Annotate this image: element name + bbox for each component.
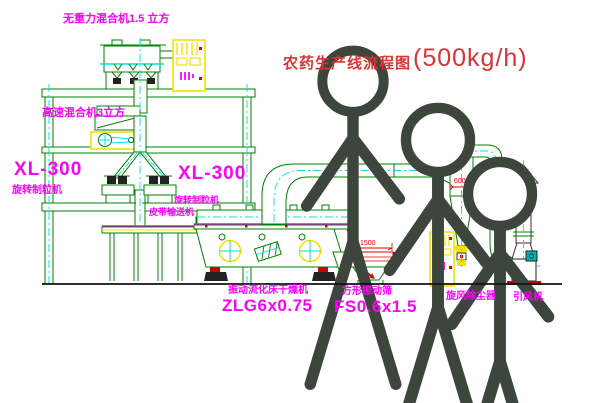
label-granulator-model-left: XL-300 bbox=[14, 160, 82, 179]
label-fluid-bed-dryer-model: ZLG6x0.75 bbox=[222, 297, 313, 314]
dimension-sieve-length: 1500 bbox=[360, 240, 376, 247]
label-fluid-bed-dryer: 振动流化床干燥机 bbox=[228, 286, 308, 296]
label-belt-conveyor: 皮带输送机 bbox=[149, 208, 194, 217]
label-induced-fan: 引风机 bbox=[513, 293, 543, 303]
label-square-sieve-model: FS0.6x1.5 bbox=[334, 298, 417, 315]
label-granulator-name-right: 旋转制粒机 bbox=[174, 196, 219, 205]
label-high-speed-mixer: 高速混合机3立方 bbox=[42, 108, 125, 119]
label-granulator-name-left: 旋转制粒机 bbox=[12, 186, 62, 196]
diagram-title: 农药生产线流程图 (500kg/h) bbox=[283, 44, 528, 73]
label-cyclone: 旋风除尘器 bbox=[446, 292, 496, 302]
zero-gravity-mixer-drawing bbox=[100, 40, 173, 113]
label-granulator-model-right: XL-300 bbox=[178, 164, 246, 183]
dimension-cyclone-width: 600 bbox=[454, 178, 466, 185]
label-square-sieve: 方形振动筛 bbox=[342, 287, 392, 297]
control-cabinet-icon bbox=[173, 40, 205, 91]
label-gravity-mixer: 无重力混合机1.5 立方 bbox=[63, 14, 169, 25]
flow-diagram-canvas: 农药生产线流程图 (500kg/h) 无重力混合机1.5 立方 高速混合机3立方… bbox=[0, 0, 600, 403]
title-text: 农药生产线流程图 bbox=[283, 52, 411, 73]
person-icon bbox=[390, 108, 487, 403]
title-capacity: (500kg/h) bbox=[413, 44, 528, 73]
